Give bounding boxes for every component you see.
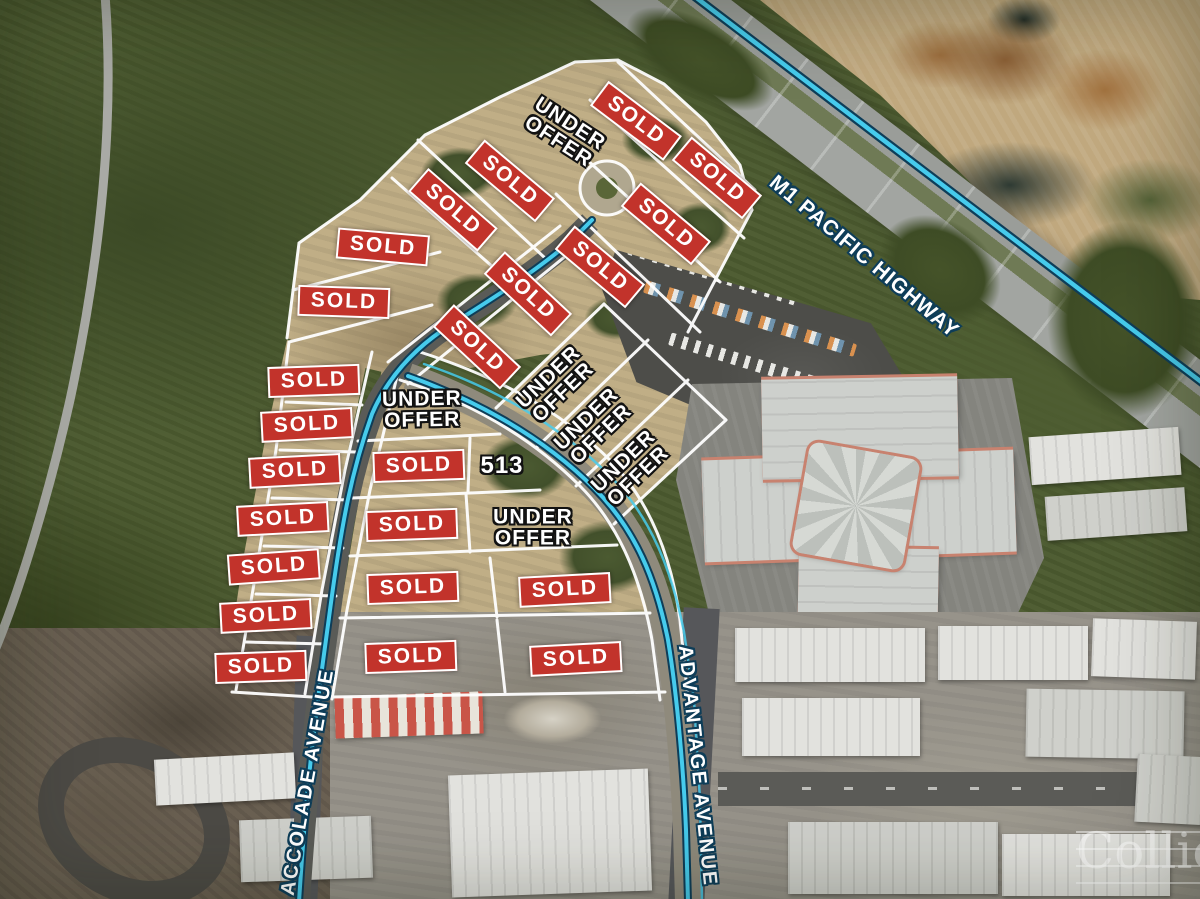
scrub-patch <box>545 510 671 604</box>
scrub-patch <box>660 195 740 261</box>
shed <box>1002 834 1170 896</box>
scrub-patch <box>468 425 584 509</box>
scrap-pile <box>495 690 610 748</box>
aerial-estate-map: M1 PACIFIC HIGHWAY ACCOLADE AVENUE ADVAN… <box>0 0 1200 899</box>
scrub-patch <box>425 265 529 337</box>
shed <box>239 816 373 883</box>
shed <box>1091 618 1197 680</box>
scrub-patch <box>612 110 700 170</box>
forest-patch <box>1030 200 1200 440</box>
shed <box>938 626 1088 680</box>
scrub-patch <box>410 140 510 206</box>
shed <box>1045 487 1188 541</box>
cross-street-road <box>718 772 1200 806</box>
shed-large <box>448 769 652 898</box>
shed <box>742 698 920 756</box>
shed <box>788 822 998 894</box>
shed-red-striped-roof <box>334 691 483 738</box>
shed <box>1029 427 1182 485</box>
warehouse-radial-roof <box>791 441 921 571</box>
shed <box>735 628 925 682</box>
shed <box>1134 754 1200 827</box>
shed <box>1025 689 1184 760</box>
shed <box>154 752 296 805</box>
